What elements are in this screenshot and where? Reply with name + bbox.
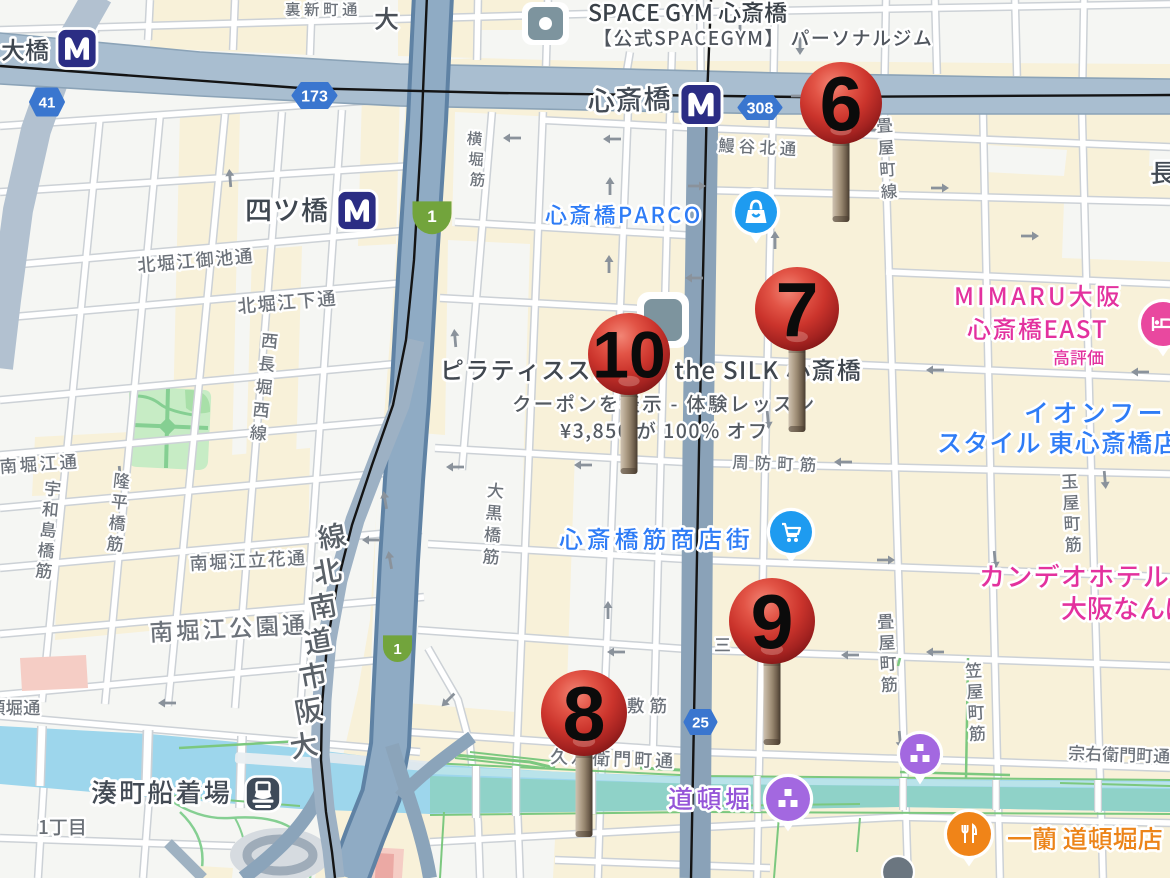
svg-text:1: 1 [393,641,401,658]
svg-text:41: 41 [39,94,56,111]
svg-text:8: 8 [563,671,606,757]
svg-text:308: 308 [747,100,774,117]
svg-text:10: 10 [592,317,665,391]
svg-text:6: 6 [820,61,863,147]
svg-text:1: 1 [427,207,436,226]
svg-text:25: 25 [692,714,709,731]
svg-text:173: 173 [301,88,328,105]
svg-text:9: 9 [751,579,794,665]
svg-text:7: 7 [776,267,819,353]
